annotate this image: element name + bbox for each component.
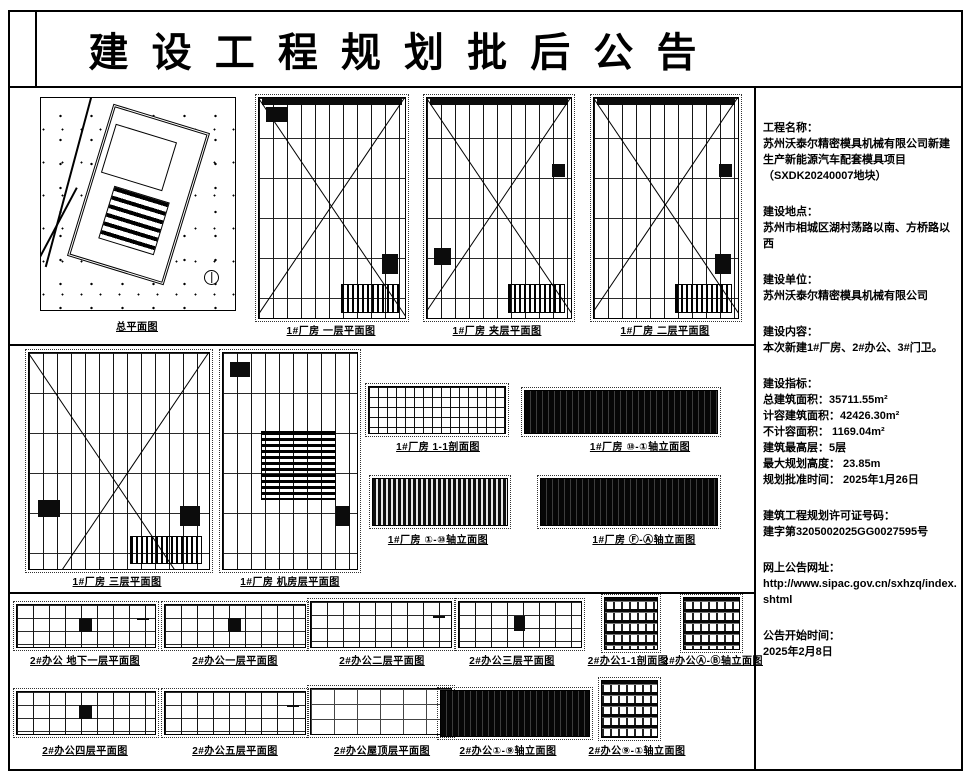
permit-block: 建筑工程规划许可证号码： 建字第3205002025GG0027595号 xyxy=(763,508,958,540)
caption-f1-elevation-f-a: 1#厂房 Ⓕ-Ⓐ轴立面图 xyxy=(592,531,695,546)
location-label: 建设地点： xyxy=(763,204,958,220)
plan-block xyxy=(552,164,565,177)
metric-counted-area: 计容建筑面积：42426.30m² xyxy=(763,408,958,424)
band2-divider xyxy=(8,592,756,594)
drawing-o2-elevation-9-1 xyxy=(601,680,658,738)
caption-f1-floor2: 1#厂房 二层平面图 xyxy=(621,322,710,337)
drawing-f1-machine-room xyxy=(222,352,358,570)
drawing-site-plan xyxy=(40,97,236,311)
plan-hatch-area xyxy=(508,284,566,313)
builder-value: 苏州沃泰尔精密模具机械有限公司 xyxy=(763,288,958,304)
drawing-f1-floor2 xyxy=(593,97,739,319)
drawing-f1-elevation-f-a xyxy=(540,478,718,526)
plan-block xyxy=(287,705,300,708)
announcement-url-label: 网上公告网址： xyxy=(763,560,958,576)
plan-block xyxy=(434,248,451,266)
builder-label: 建设单位： xyxy=(763,272,958,288)
plan-block xyxy=(230,362,250,377)
caption-site-plan: 总平面图 xyxy=(116,318,158,333)
metrics-block: 建设指标： 总建筑面积：35711.55m² 计容建筑面积：42426.30m²… xyxy=(763,376,958,488)
builder-block: 建设单位： 苏州沃泰尔精密模具机械有限公司 xyxy=(763,272,958,304)
drawing-o2-floor3 xyxy=(458,601,582,648)
drawing-f1-section-1-1 xyxy=(368,386,506,434)
caption-o2-floor5: 2#办公五层平面图 xyxy=(192,742,278,757)
plan-block xyxy=(336,506,351,525)
caption-o2-elevation-1-9: 2#办公①-⑨轴立面图 xyxy=(460,742,557,757)
plan-dark-band xyxy=(262,98,402,105)
plan-hatch-area xyxy=(341,284,399,313)
plan-dark-band xyxy=(430,98,568,105)
caption-f1-machine-room: 1#厂房 机房层平面图 xyxy=(240,573,339,588)
plan-block xyxy=(715,254,731,274)
drawing-f1-floor1 xyxy=(258,97,406,319)
caption-f1-mezzanine: 1#厂房 夹层平面图 xyxy=(453,322,542,337)
announcement-url: http://www.sipac.gov.cn/sxhzq/index.shtm… xyxy=(763,576,958,608)
caption-o2-roof-plan: 2#办公屋顶层平面图 xyxy=(334,742,430,757)
caption-f1-floor1: 1#厂房 一层平面图 xyxy=(287,322,376,337)
drawing-o2-elevation-1-9 xyxy=(440,690,590,737)
metric-total-area: 总建筑面积：35711.55m² xyxy=(763,392,958,408)
caption-f1-elevation-10-1: 1#厂房 ⑩-①轴立面图 xyxy=(590,438,690,453)
drawing-f1-mezzanine xyxy=(426,97,572,319)
caption-o2-floor2: 2#办公二层平面图 xyxy=(339,652,425,667)
location-value: 苏州市相城区湖村荡路以南、方桥路以西 xyxy=(763,220,958,252)
drawing-f1-elevation-10-1 xyxy=(524,390,718,434)
notice-board: 建 设 工 程 规 划 批 后 公 告 xyxy=(0,0,971,781)
plan-block xyxy=(79,618,91,632)
plan-block xyxy=(180,506,200,525)
project-name-label: 工程名称： xyxy=(763,120,958,136)
drawing-o2-floor1 xyxy=(164,604,306,648)
content-block: 建设内容： 本次新建1#厂房、2#办公、3#门卫。 xyxy=(763,324,958,356)
metrics-label: 建设指标： xyxy=(763,376,958,392)
band1-divider xyxy=(8,344,756,346)
content-value: 本次新建1#厂房、2#办公、3#门卫。 xyxy=(763,340,958,356)
start-date-block: 公告开始时间： 2025年2月8日 xyxy=(763,628,958,660)
plan-hatch-area xyxy=(675,284,733,313)
metric-approval-date: 规划批准时间： 2025年1月26日 xyxy=(763,472,958,488)
project-parcel: （SXDK20240007地块） xyxy=(763,168,958,184)
info-panel-divider xyxy=(754,87,756,771)
drawing-o2-elevation-a-b xyxy=(683,597,740,650)
plan-hatch-area xyxy=(261,431,336,500)
content-label: 建设内容： xyxy=(763,324,958,340)
project-name-block: 工程名称： 苏州沃泰尔精密模具机械有限公司新建生产新能源汽车配套模具项目 （SX… xyxy=(763,120,958,184)
metric-max-floors: 建筑最高层：5层 xyxy=(763,440,958,456)
drawing-o2-floor5 xyxy=(164,691,306,735)
plan-block xyxy=(228,618,241,632)
plan-block xyxy=(514,616,525,631)
page-title: 建 设 工 程 规 划 批 后 公 告 xyxy=(35,12,756,86)
plan-block xyxy=(719,164,732,177)
plan-block xyxy=(266,107,288,122)
plan-dark-band xyxy=(597,98,735,105)
metric-uncounted-area: 不计容面积： 1169.04m² xyxy=(763,424,958,440)
project-name-value: 苏州沃泰尔精密模具机械有限公司新建生产新能源汽车配套模具项目 xyxy=(763,136,958,168)
drawing-o2-floor2 xyxy=(310,601,452,648)
plan-block xyxy=(79,705,91,719)
start-date-label: 公告开始时间： xyxy=(763,628,958,644)
north-arrow-icon xyxy=(204,270,219,285)
start-date-value: 2025年2月8日 xyxy=(763,644,958,660)
plan-block xyxy=(382,254,398,274)
caption-f1-elevation-1-10: 1#厂房 ①-⑩轴立面图 xyxy=(388,531,488,546)
drawing-f1-floor3 xyxy=(28,352,210,570)
location-block: 建设地点： 苏州市相城区湖村荡路以南、方桥路以西 xyxy=(763,204,958,252)
caption-o2-basement1: 2#办公 地下一层平面图 xyxy=(30,652,140,667)
caption-o2-elevation-9-1: 2#办公⑨-①轴立面图 xyxy=(589,742,686,757)
drawing-f1-elevation-1-10 xyxy=(372,478,508,526)
drawing-o2-basement1 xyxy=(16,604,156,648)
plan-block xyxy=(433,616,446,619)
plan-hatch-area xyxy=(130,536,202,564)
permit-label: 建筑工程规划许可证号码： xyxy=(763,508,958,524)
caption-o2-floor4: 2#办公四层平面图 xyxy=(42,742,128,757)
permit-number: 建字第3205002025GG0027595号 xyxy=(763,524,958,540)
caption-f1-section-1-1: 1#厂房 1-1剖面图 xyxy=(396,438,480,453)
plan-block xyxy=(38,500,60,517)
drawing-o2-section-1-1 xyxy=(604,597,658,650)
drawing-o2-roof-plan xyxy=(310,688,452,735)
caption-o2-floor1: 2#办公一层平面图 xyxy=(192,652,278,667)
caption-f1-floor3: 1#厂房 三层平面图 xyxy=(73,573,162,588)
caption-o2-floor3: 2#办公三层平面图 xyxy=(469,652,555,667)
caption-o2-elevation-a-b: 2#办公Ⓐ-Ⓑ轴立面图 xyxy=(663,652,763,667)
plan-block xyxy=(137,618,149,621)
drawing-o2-floor4 xyxy=(16,691,156,735)
url-block: 网上公告网址： http://www.sipac.gov.cn/sxhzq/in… xyxy=(763,560,958,608)
info-panel: 工程名称： 苏州沃泰尔精密模具机械有限公司新建生产新能源汽车配套模具项目 （SX… xyxy=(762,88,960,771)
metric-max-height: 最大规划高度： 23.85m xyxy=(763,456,958,472)
caption-o2-section-1-1: 2#办公1-1剖面图 xyxy=(588,652,669,667)
